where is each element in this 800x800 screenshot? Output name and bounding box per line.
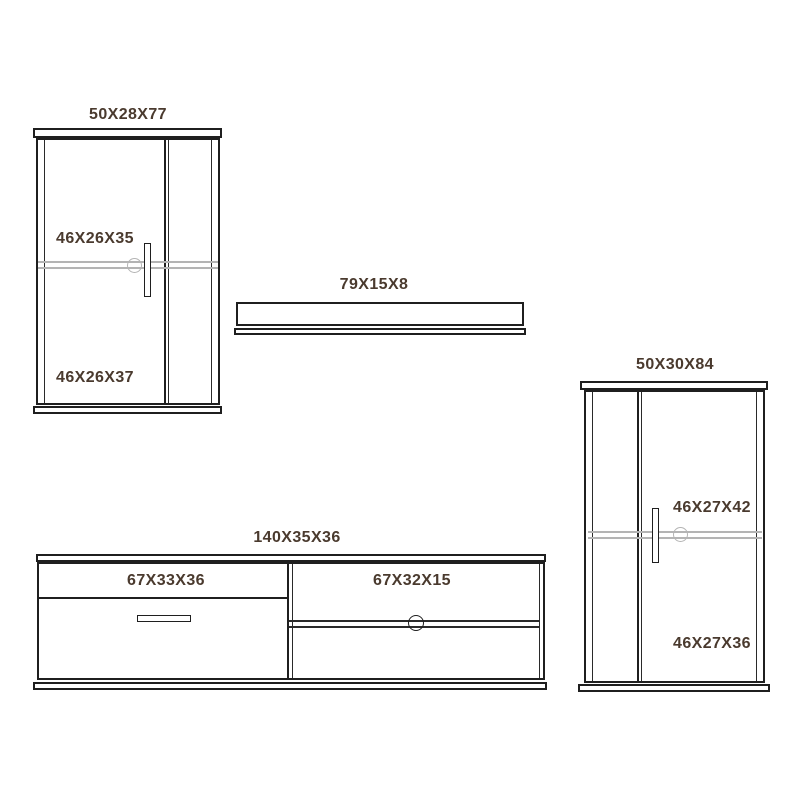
right-cabinet-bottom-panel bbox=[578, 684, 770, 692]
left-cabinet-bottom-panel bbox=[33, 406, 222, 414]
wall-shelf-board bbox=[236, 302, 524, 326]
right-cabinet-cam-fitting-icon bbox=[673, 527, 688, 542]
right-cabinet-size-label: 50X30X84 bbox=[636, 356, 714, 374]
right-cabinet-top-panel bbox=[580, 381, 768, 390]
left-cabinet-size-label: 50X28X77 bbox=[89, 106, 167, 124]
left-cabinet-upper-compartment-label: 46X26X35 bbox=[56, 230, 134, 248]
wall-shelf-size-label: 79X15X8 bbox=[340, 276, 409, 294]
tv-unit-right-compartment-label: 67X32X15 bbox=[373, 572, 451, 590]
left-cabinet-cam-fitting-icon bbox=[127, 258, 142, 273]
tv-unit-left-compartment-label: 67X33X36 bbox=[127, 572, 205, 590]
tv-unit-top-panel bbox=[36, 554, 546, 562]
furniture-dimensions-diagram: 50X28X77 46X26X35 46X26X37 79X15X8 50X30… bbox=[0, 0, 800, 800]
left-cabinet-lower-compartment-label: 46X26X37 bbox=[56, 369, 134, 387]
tv-unit-cam-fitting-icon bbox=[408, 615, 424, 631]
left-cabinet-inner-right-line bbox=[211, 140, 212, 403]
wall-shelf-bottom-strip bbox=[234, 328, 526, 335]
left-cabinet-body bbox=[36, 138, 220, 405]
tv-unit-left-drawer-top-line bbox=[39, 597, 287, 599]
right-cabinet-upper-compartment-label: 46X27X42 bbox=[673, 499, 751, 517]
left-cabinet-door-edge-line bbox=[164, 138, 166, 405]
tv-unit-size-label: 140X35X36 bbox=[253, 529, 340, 547]
left-cabinet-partition-line bbox=[168, 140, 169, 403]
left-cabinet-top-panel bbox=[33, 128, 222, 138]
right-cabinet-lower-compartment-label: 46X27X36 bbox=[673, 635, 751, 653]
left-cabinet-door-handle bbox=[144, 243, 151, 297]
left-cabinet-inner-left-line bbox=[44, 140, 45, 403]
tv-unit-bottom-panel bbox=[33, 682, 547, 690]
right-cabinet-door-handle bbox=[652, 508, 659, 563]
tv-unit-inner-right-line bbox=[539, 564, 540, 678]
tv-unit-drawer-handle bbox=[137, 615, 191, 622]
